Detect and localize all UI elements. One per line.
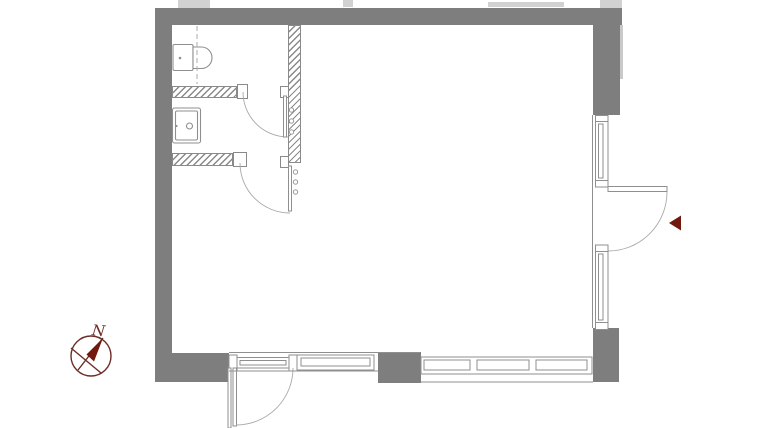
- compass-north-icon: N: [71, 321, 111, 376]
- toilet-icon: [173, 26, 212, 84]
- wc-door: [243, 92, 294, 137]
- entry-door: [608, 187, 667, 252]
- sink-icon: [173, 108, 201, 143]
- entrance-arrow-icon: [669, 216, 681, 231]
- compass-north-label: N: [90, 321, 107, 340]
- right-window-lower: [596, 245, 609, 330]
- bathroom-door: [240, 163, 298, 213]
- floor-plan: N: [0, 0, 760, 428]
- bottom-window-right: [421, 357, 593, 382]
